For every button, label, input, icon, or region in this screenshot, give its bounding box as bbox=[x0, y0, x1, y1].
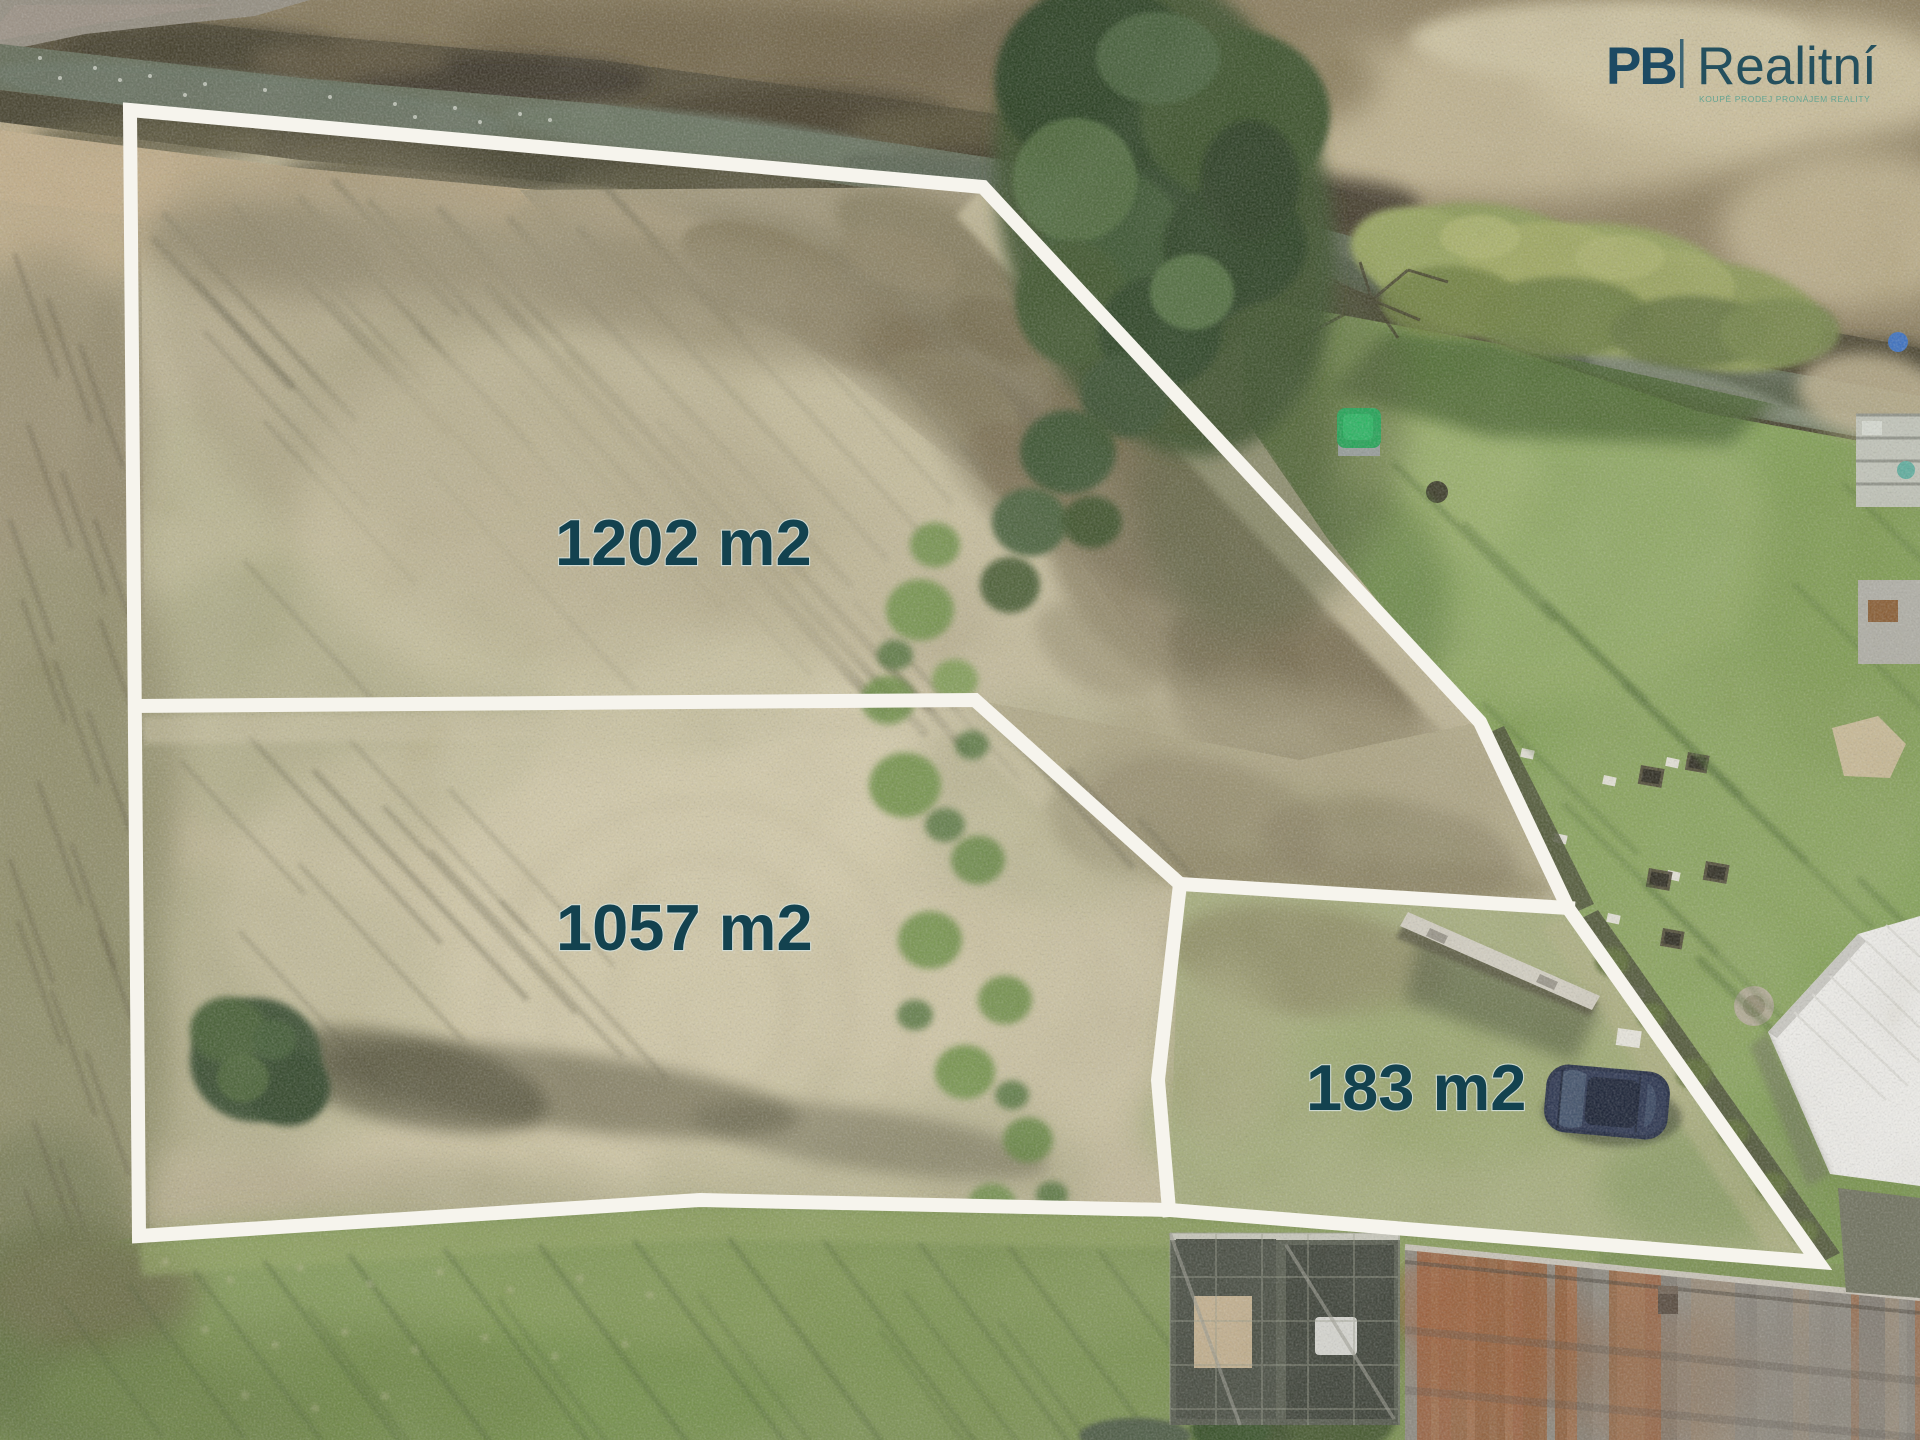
svg-text:PB: PB bbox=[1606, 37, 1676, 96]
svg-text:183 m2: 183 m2 bbox=[1306, 1051, 1526, 1124]
svg-text:1202 m2: 1202 m2 bbox=[555, 506, 812, 579]
svg-text:1057 m2: 1057 m2 bbox=[556, 891, 813, 964]
svg-text:Realitní: Realitní bbox=[1697, 37, 1877, 96]
svg-text:KOUPĚ PRODEJ PRONÁJEM REALITY: KOUPĚ PRODEJ PRONÁJEM REALITY bbox=[1699, 94, 1870, 104]
